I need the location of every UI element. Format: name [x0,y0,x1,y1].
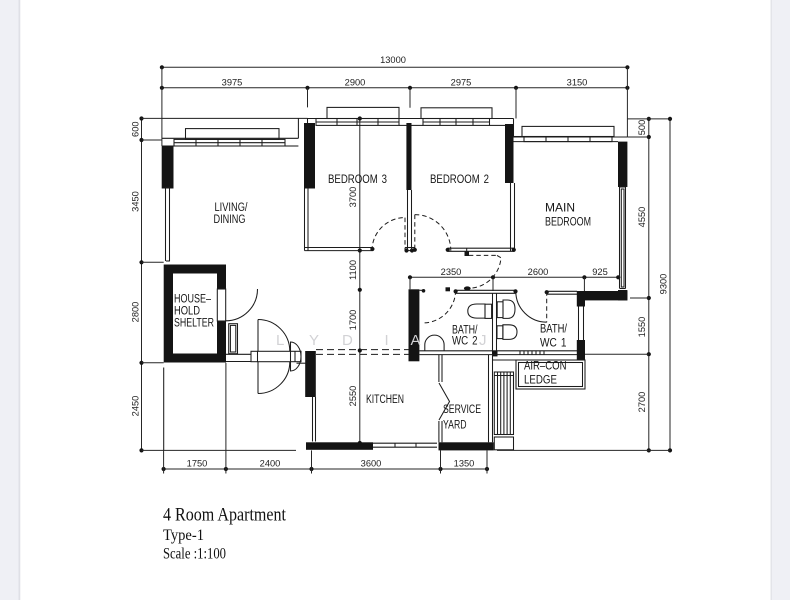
svg-text:1100: 1100 [348,260,358,280]
svg-text:2550: 2550 [348,386,358,407]
svg-text:AIR–CON: AIR–CON [524,361,567,373]
svg-text:13000: 13000 [380,55,406,65]
svg-text:LEDGE: LEDGE [524,375,557,387]
svg-text:2800: 2800 [131,302,141,323]
svg-text:Type-1: Type-1 [163,527,204,544]
svg-text:J: J [479,332,487,349]
svg-text:1350: 1350 [454,459,475,469]
svg-text:L: L [276,332,284,349]
svg-text:2350: 2350 [441,267,462,277]
svg-text:3600: 3600 [361,459,382,469]
svg-text:LIVING/: LIVING/ [215,202,249,214]
svg-text:HOLD: HOLD [174,306,200,318]
svg-text:1700: 1700 [348,310,358,331]
svg-text:2700: 2700 [637,392,647,413]
svg-text:BEDROOM: BEDROOM [545,217,591,229]
svg-text:2600: 2600 [528,267,549,277]
svg-text:1550: 1550 [637,317,647,338]
svg-text:600: 600 [131,121,141,137]
svg-text:4 Room Apartment: 4 Room Apartment [163,505,287,526]
svg-text:SERVICE: SERVICE [443,404,481,416]
svg-text:BEDROOM 3: BEDROOM 3 [328,174,387,186]
svg-text:DINING: DINING [214,214,246,226]
svg-text:WC 2: WC 2 [452,336,478,348]
svg-text:2900: 2900 [345,78,366,88]
svg-text:D: D [342,332,353,349]
svg-text:4550: 4550 [637,207,647,228]
svg-text:HOUSE–: HOUSE– [174,294,211,306]
svg-text:Y: Y [309,332,319,349]
svg-text:9300: 9300 [659,274,669,295]
svg-text:WC 1: WC 1 [540,338,567,350]
svg-text:KITCHEN: KITCHEN [366,394,404,406]
svg-text:SHELTER: SHELTER [174,318,214,330]
svg-text:Scale :1:100: Scale :1:100 [163,546,226,563]
svg-text:BEDROOM 2: BEDROOM 2 [430,174,489,186]
svg-text:2400: 2400 [260,459,281,469]
svg-text:3450: 3450 [131,191,141,212]
svg-text:2975: 2975 [451,78,472,88]
svg-text:A: A [411,332,421,349]
svg-text:BATH/: BATH/ [540,324,568,336]
svg-text:3700: 3700 [348,187,358,208]
svg-text:2450: 2450 [131,396,141,417]
svg-text:I: I [385,332,389,349]
svg-text:YARD: YARD [443,420,467,432]
svg-text:500: 500 [637,120,647,136]
svg-text:1750: 1750 [187,459,208,469]
svg-text:3975: 3975 [222,78,243,88]
svg-text:3150: 3150 [567,78,588,88]
svg-text:MAIN: MAIN [545,203,575,215]
svg-text:925: 925 [592,267,608,277]
